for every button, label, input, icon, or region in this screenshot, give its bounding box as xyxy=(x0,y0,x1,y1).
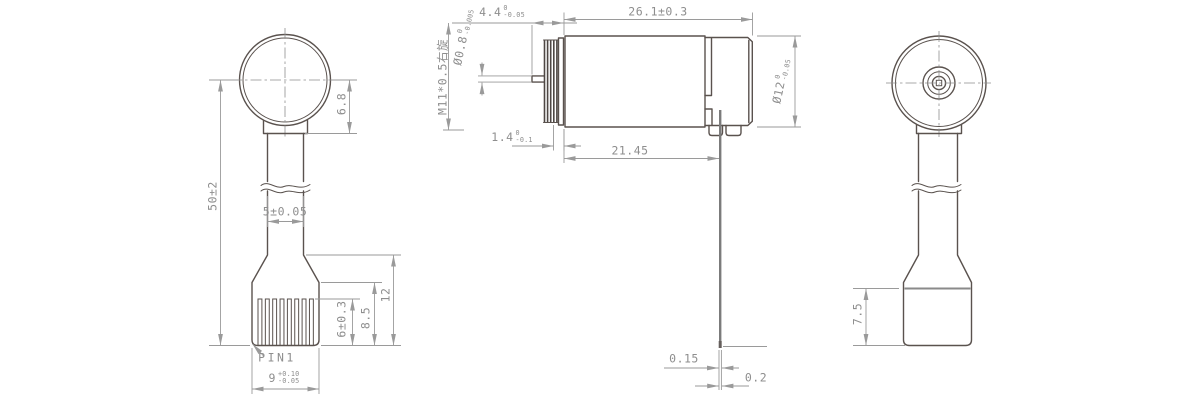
dim-overall-height: 50±2 xyxy=(208,181,219,211)
dim-head-offset: 6.8 xyxy=(337,93,348,115)
dim-pin-thickness: 0.15 xyxy=(669,354,699,365)
stem-upper xyxy=(268,134,304,182)
motor-body-outline xyxy=(565,36,705,127)
thread-section xyxy=(544,40,559,123)
dim-face-to-pin: 21.45 xyxy=(611,146,648,157)
right-rear-view xyxy=(853,31,991,346)
stem-and-connector-outline xyxy=(904,191,972,346)
dim-pin-strip-height: 6±0.3 xyxy=(337,300,348,337)
break-line xyxy=(261,184,310,188)
shaft-outline xyxy=(532,76,544,82)
dim-connector-width: 9 +0.10-0.05 xyxy=(269,371,300,385)
engineering-drawing-canvas: 50±2 6.8 5±0.05 6±0.3 8.5 12 PIN1 9 +0.1… xyxy=(0,0,1200,400)
break-line xyxy=(912,189,961,193)
dim-stem-width: 5±0.05 xyxy=(263,207,308,218)
dim-connector-height: 12 xyxy=(381,288,392,303)
center-view-dimensions xyxy=(443,13,801,391)
pin1-label: PIN1 xyxy=(258,353,296,364)
end-cap-outline xyxy=(705,38,752,126)
mounting-collar xyxy=(559,38,564,125)
center-front-view xyxy=(443,13,801,391)
dim-collar-length: 1.4 0-0.1 xyxy=(491,130,532,144)
dim-body-length: 26.1±0.3 xyxy=(628,7,687,18)
terminal-tabs xyxy=(709,126,741,136)
dim-pad-height: 8.5 xyxy=(361,307,372,329)
thread-spec-label: M11*0.5右旋 xyxy=(438,39,449,115)
connector-pin-stripes xyxy=(258,299,313,346)
dim-base-depth: 7.5 xyxy=(853,303,864,325)
left-view-dimensions xyxy=(209,80,401,394)
stem-upper xyxy=(919,134,958,182)
dim-tip-length: 4.4 0-0.05 xyxy=(479,5,525,19)
break-line xyxy=(261,189,310,193)
drawing-linework xyxy=(0,0,1200,400)
dim-pin-offset: 0.2 xyxy=(745,373,767,384)
break-line xyxy=(912,184,961,188)
